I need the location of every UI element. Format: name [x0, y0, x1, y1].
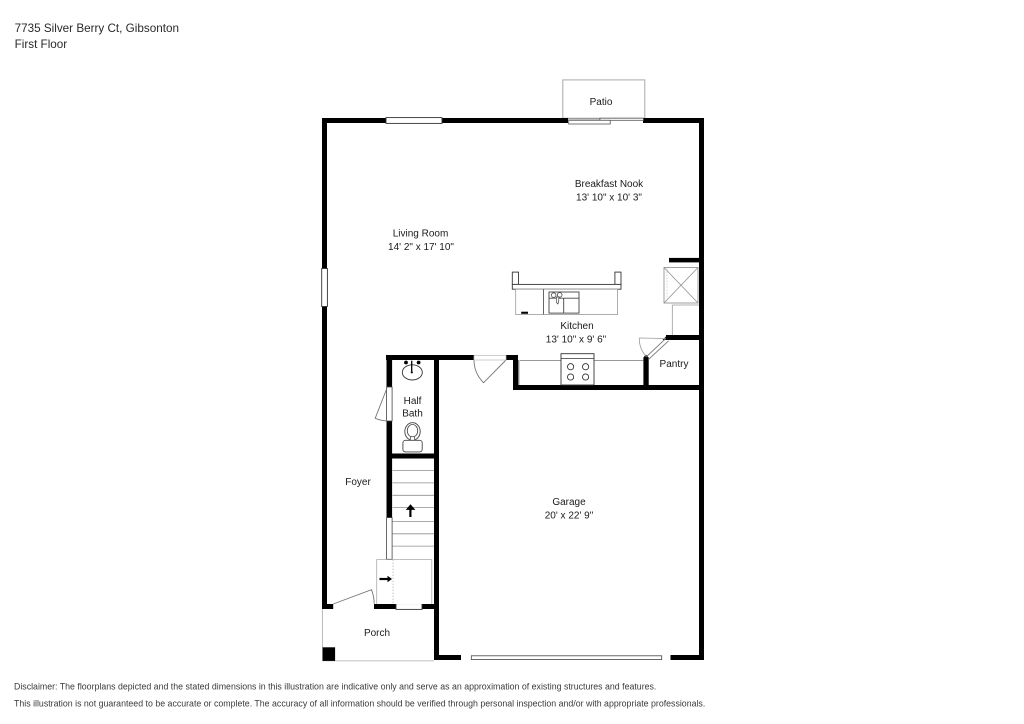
svg-text:13' 10" x 9' 6": 13' 10" x 9' 6": [546, 335, 607, 346]
svg-text:Porch: Porch: [364, 628, 390, 639]
svg-text:Foyer: Foyer: [345, 477, 371, 488]
svg-text:First Floor: First Floor: [15, 38, 68, 51]
svg-text:Kitchen: Kitchen: [560, 321, 593, 332]
svg-text:Living Room: Living Room: [393, 229, 449, 240]
svg-text:Half: Half: [404, 396, 422, 407]
svg-text:Bath: Bath: [402, 409, 423, 420]
svg-text:20' x 22' 9": 20' x 22' 9": [545, 511, 594, 522]
svg-text:Garage: Garage: [552, 497, 586, 508]
svg-text:Pantry: Pantry: [660, 359, 689, 370]
svg-text:Patio: Patio: [590, 97, 613, 108]
svg-text:7735 Silver Berry Ct, Gibsonto: 7735 Silver Berry Ct, Gibsonton: [15, 22, 179, 35]
svg-text:13' 10" x 10' 3": 13' 10" x 10' 3": [576, 192, 642, 203]
svg-text:14' 2" x 17' 10": 14' 2" x 17' 10": [388, 242, 454, 253]
svg-text:Breakfast Nook: Breakfast Nook: [575, 179, 644, 190]
svg-text:This illustration is not guara: This illustration is not guaranteed to b…: [14, 698, 705, 708]
svg-text:Disclaimer: The floorplans dep: Disclaimer: The floorplans depicted and …: [14, 682, 656, 692]
